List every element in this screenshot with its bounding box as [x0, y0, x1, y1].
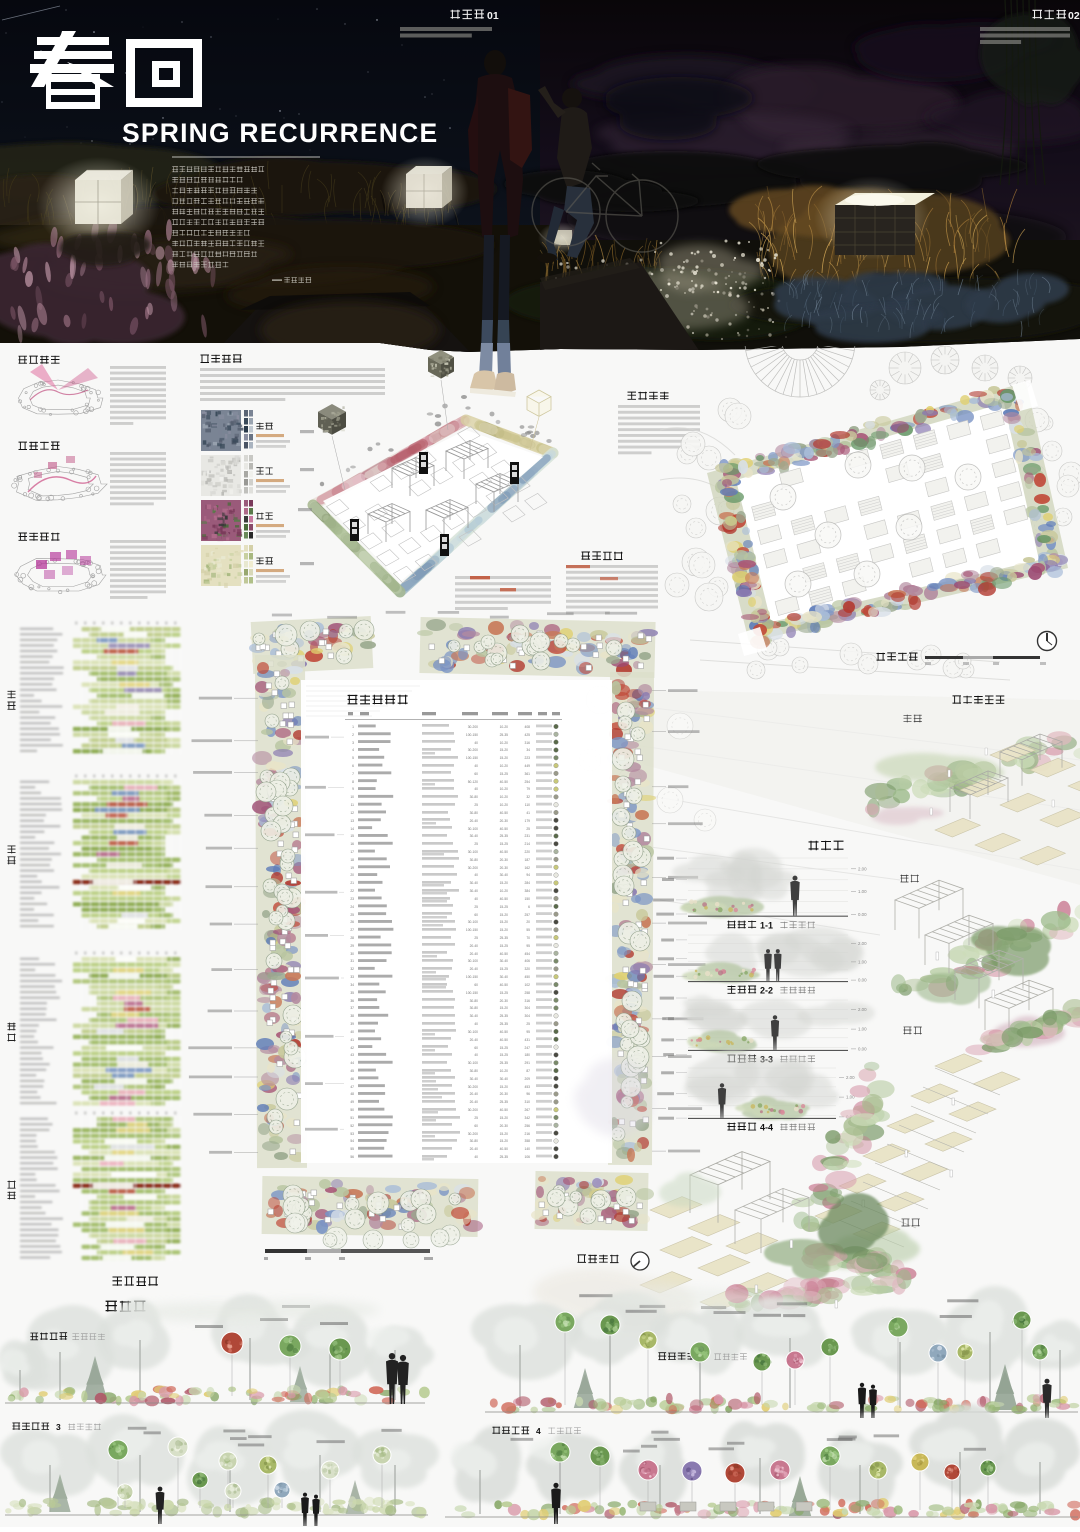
svg-text:30-100: 30-100: [468, 850, 478, 854]
svg-text:25: 25: [474, 936, 478, 940]
svg-text:22: 22: [350, 889, 354, 893]
svg-text:18: 18: [350, 858, 354, 862]
svg-text:267: 267: [524, 1108, 530, 1112]
svg-text:257: 257: [524, 913, 530, 917]
svg-text:30-100: 30-100: [468, 920, 478, 924]
svg-text:30-200: 30-200: [468, 866, 478, 870]
svg-text:15-20: 15-20: [500, 1006, 509, 1010]
svg-text:30-40: 30-40: [500, 975, 509, 979]
svg-text:30-40: 30-40: [500, 959, 509, 963]
svg-text:34: 34: [350, 983, 354, 987]
svg-text:25: 25: [474, 803, 478, 807]
svg-text:450: 450: [524, 975, 530, 979]
svg-text:25: 25: [526, 827, 530, 831]
svg-text:30-100: 30-100: [468, 1061, 478, 1065]
svg-text:15-25: 15-25: [500, 905, 509, 909]
svg-text:60: 60: [474, 772, 478, 776]
svg-text:25-35: 25-35: [500, 1155, 509, 1159]
svg-text:35: 35: [350, 991, 354, 995]
svg-text:7: 7: [352, 772, 354, 776]
svg-text:40-50: 40-50: [500, 827, 509, 831]
svg-text:15-25: 15-25: [500, 1046, 509, 1050]
svg-text:11: 11: [351, 803, 355, 807]
svg-text:20-30: 20-30: [500, 1092, 509, 1096]
svg-text:2.00: 2.00: [858, 941, 867, 946]
svg-text:15-20: 15-20: [500, 1116, 509, 1120]
svg-text:231: 231: [524, 834, 530, 838]
svg-text:15: 15: [350, 834, 354, 838]
svg-text:10-20: 10-20: [500, 741, 509, 745]
svg-text:15-20: 15-20: [500, 920, 509, 924]
svg-text:220: 220: [524, 850, 530, 854]
svg-text:25-35: 25-35: [500, 733, 509, 737]
svg-text:28: 28: [350, 936, 354, 940]
svg-text:40-50: 40-50: [500, 850, 509, 854]
svg-text:10-20: 10-20: [500, 725, 509, 729]
svg-text:4: 4: [352, 748, 354, 752]
svg-text:19: 19: [350, 866, 354, 870]
svg-text:284: 284: [524, 881, 530, 885]
svg-text:20-40: 20-40: [470, 1100, 479, 1104]
svg-text:100-150: 100-150: [466, 733, 478, 737]
svg-text:2.00: 2.00: [846, 1075, 855, 1080]
svg-text:40-50: 40-50: [500, 1147, 509, 1151]
svg-text:30-80: 30-80: [470, 795, 479, 799]
svg-text:30-80: 30-80: [470, 1139, 479, 1143]
svg-text:15-25: 15-25: [500, 944, 509, 948]
svg-text:453: 453: [524, 1085, 530, 1089]
svg-text:30-80: 30-80: [470, 811, 479, 815]
svg-text:33: 33: [350, 975, 354, 979]
svg-text:53: 53: [350, 1132, 354, 1136]
svg-text:100-150: 100-150: [466, 991, 478, 995]
svg-text:20-40: 20-40: [470, 1147, 479, 1151]
svg-text:6: 6: [352, 764, 354, 768]
svg-text:140: 140: [524, 1147, 530, 1151]
svg-text:47: 47: [350, 1085, 354, 1089]
svg-text:26: 26: [350, 920, 354, 924]
svg-text:5: 5: [352, 756, 354, 760]
svg-text:20-40: 20-40: [470, 944, 479, 948]
svg-text:102: 102: [524, 983, 530, 987]
svg-text:9: 9: [352, 787, 354, 791]
svg-text:15-20: 15-20: [500, 1132, 509, 1136]
svg-text:41: 41: [350, 1038, 354, 1042]
svg-text:40: 40: [474, 1022, 478, 1026]
svg-text:254: 254: [524, 780, 530, 784]
svg-text:20: 20: [350, 873, 354, 877]
svg-text:40: 40: [474, 1053, 478, 1057]
svg-text:10-20: 10-20: [500, 889, 509, 893]
svg-text:40-50: 40-50: [500, 1108, 509, 1112]
svg-text:8: 8: [352, 780, 354, 784]
svg-text:95: 95: [526, 1030, 530, 1034]
svg-text:55: 55: [526, 928, 530, 932]
svg-text:180: 180: [524, 1053, 530, 1057]
svg-text:10-20: 10-20: [500, 787, 509, 791]
svg-text:38: 38: [350, 1014, 354, 1018]
svg-text:15-20: 15-20: [500, 748, 509, 752]
svg-text:15-20: 15-20: [500, 881, 509, 885]
svg-text:32: 32: [350, 967, 354, 971]
svg-text:2.00: 2.00: [858, 866, 867, 871]
svg-text:50: 50: [350, 1108, 354, 1112]
svg-text:449: 449: [524, 764, 530, 768]
svg-text:1-1: 1-1: [760, 921, 773, 931]
svg-text:30-200: 30-200: [468, 1085, 478, 1089]
svg-text:20-40: 20-40: [470, 967, 479, 971]
svg-text:15-25: 15-25: [500, 772, 509, 776]
svg-text:23: 23: [350, 897, 354, 901]
svg-text:31: 31: [350, 959, 354, 963]
svg-text:216: 216: [524, 1132, 530, 1136]
svg-text:96: 96: [526, 1092, 530, 1096]
svg-text:43: 43: [350, 1053, 354, 1057]
svg-text:12: 12: [350, 811, 354, 815]
svg-text:49: 49: [350, 1100, 354, 1104]
svg-text:10: 10: [350, 795, 354, 799]
svg-text:20-40: 20-40: [470, 1038, 479, 1042]
svg-text:40-50: 40-50: [500, 811, 509, 815]
svg-text:40-50: 40-50: [500, 1038, 509, 1042]
svg-text:60: 60: [474, 1124, 478, 1128]
svg-text:10-20: 10-20: [500, 803, 509, 807]
svg-text:15-20: 15-20: [500, 928, 509, 932]
svg-text:15-25: 15-25: [500, 1053, 509, 1057]
svg-text:20-30: 20-30: [500, 1124, 509, 1128]
svg-text:54: 54: [350, 1139, 354, 1143]
svg-text:408: 408: [524, 725, 530, 729]
svg-text:56: 56: [350, 1155, 354, 1159]
svg-text:60: 60: [474, 983, 478, 987]
svg-text:30-100: 30-100: [468, 959, 478, 963]
svg-text:02: 02: [1068, 10, 1080, 22]
svg-text:30-40: 30-40: [470, 881, 479, 885]
svg-text:40: 40: [474, 741, 478, 745]
svg-text:320: 320: [524, 967, 530, 971]
svg-text:316: 316: [524, 741, 530, 745]
svg-text:40: 40: [474, 897, 478, 901]
svg-text:40-50: 40-50: [500, 1030, 509, 1034]
svg-text:20-40: 20-40: [470, 952, 479, 956]
svg-text:SPRING RECURRENCE: SPRING RECURRENCE: [122, 118, 438, 148]
svg-text:01: 01: [487, 10, 499, 22]
svg-text:1.00: 1.00: [858, 889, 867, 894]
svg-text:45: 45: [350, 1069, 354, 1073]
svg-text:30-200: 30-200: [468, 1132, 478, 1136]
svg-text:15-25: 15-25: [500, 991, 509, 995]
svg-text:30-40: 30-40: [470, 1077, 479, 1081]
svg-text:30-40: 30-40: [470, 889, 479, 893]
svg-text:30-80: 30-80: [470, 1006, 479, 1010]
svg-text:30-80: 30-80: [470, 858, 479, 862]
svg-text:36: 36: [350, 999, 354, 1003]
svg-text:25-35: 25-35: [500, 1100, 509, 1104]
svg-text:40-50: 40-50: [500, 952, 509, 956]
svg-text:40: 40: [474, 1155, 478, 1159]
svg-text:454: 454: [524, 952, 530, 956]
svg-text:100-150: 100-150: [466, 756, 478, 760]
svg-text:358: 358: [524, 1139, 530, 1143]
svg-text:79: 79: [526, 787, 530, 791]
svg-text:87: 87: [526, 1069, 530, 1073]
svg-text:30-80: 30-80: [470, 999, 479, 1003]
svg-text:3: 3: [352, 741, 354, 745]
svg-text:25: 25: [474, 842, 478, 846]
svg-text:150: 150: [524, 897, 530, 901]
svg-text:2: 2: [352, 733, 354, 737]
svg-text:3: 3: [56, 1422, 61, 1432]
svg-text:25-35: 25-35: [500, 1014, 509, 1018]
svg-text:361: 361: [524, 772, 530, 776]
svg-text:15-25: 15-25: [500, 842, 509, 846]
svg-text:51: 51: [350, 1116, 354, 1120]
svg-text:4-4: 4-4: [760, 1123, 773, 1133]
svg-text:187: 187: [524, 858, 530, 862]
svg-text:406: 406: [524, 959, 530, 963]
svg-text:24: 24: [350, 905, 354, 909]
svg-text:15-20: 15-20: [500, 1139, 509, 1143]
svg-text:2-2: 2-2: [760, 986, 773, 996]
svg-text:25: 25: [474, 1116, 478, 1120]
svg-text:2.00: 2.00: [858, 1007, 867, 1012]
svg-text:10-20: 10-20: [500, 764, 509, 768]
svg-text:16: 16: [350, 842, 354, 846]
svg-text:25-35: 25-35: [500, 936, 509, 940]
svg-text:30-100: 30-100: [468, 1030, 478, 1034]
svg-text:15-25: 15-25: [500, 967, 509, 971]
svg-text:100-150: 100-150: [466, 975, 478, 979]
svg-text:29: 29: [350, 944, 354, 948]
svg-text:40-50: 40-50: [500, 780, 509, 784]
svg-text:42: 42: [350, 1046, 354, 1050]
svg-text:100-150: 100-150: [466, 928, 478, 932]
svg-text:40-50: 40-50: [500, 983, 509, 987]
svg-text:256: 256: [524, 1124, 530, 1128]
svg-text:258: 258: [524, 991, 530, 995]
svg-text:20-30: 20-30: [500, 999, 509, 1003]
svg-text:15-20: 15-20: [500, 913, 509, 917]
svg-text:17: 17: [350, 850, 354, 854]
svg-text:40: 40: [474, 787, 478, 791]
svg-text:20-40: 20-40: [470, 1092, 479, 1096]
svg-text:10-20: 10-20: [500, 1069, 509, 1073]
svg-text:40: 40: [474, 764, 478, 768]
svg-text:25-35: 25-35: [500, 1022, 509, 1026]
svg-text:25: 25: [474, 905, 478, 909]
svg-text:310: 310: [524, 1100, 530, 1104]
svg-text:304: 304: [524, 1014, 530, 1018]
svg-text:40: 40: [350, 1030, 354, 1034]
svg-text:0.00: 0.00: [858, 912, 867, 917]
svg-text:46: 46: [350, 1077, 354, 1081]
svg-text:21: 21: [350, 881, 354, 885]
svg-text:30-80: 30-80: [470, 1069, 479, 1073]
svg-text:20-30: 20-30: [500, 819, 509, 823]
svg-text:10-20: 10-20: [500, 795, 509, 799]
svg-text:106: 106: [524, 1155, 530, 1159]
svg-text:14: 14: [350, 827, 354, 831]
svg-text:0.00: 0.00: [858, 1047, 867, 1052]
svg-text:60: 60: [474, 1046, 478, 1050]
svg-text:40: 40: [474, 873, 478, 877]
svg-text:55: 55: [350, 1147, 354, 1151]
svg-text:223: 223: [524, 756, 530, 760]
svg-text:25: 25: [350, 913, 354, 917]
svg-text:247: 247: [524, 1046, 530, 1050]
svg-text:30-40: 30-40: [500, 1077, 509, 1081]
svg-text:1.00: 1.00: [858, 1027, 867, 1032]
svg-text:15-20: 15-20: [500, 756, 509, 760]
svg-text:431: 431: [524, 1038, 530, 1042]
svg-text:37: 37: [350, 1006, 354, 1010]
svg-text:209: 209: [524, 1077, 530, 1081]
svg-text:15-20: 15-20: [500, 1085, 509, 1089]
svg-text:30-40: 30-40: [470, 1014, 479, 1018]
svg-text:30-40: 30-40: [470, 834, 479, 838]
svg-text:20-30: 20-30: [500, 866, 509, 870]
svg-text:60: 60: [474, 913, 478, 917]
svg-text:44: 44: [350, 1061, 354, 1065]
svg-text:95: 95: [526, 944, 530, 948]
svg-text:30-200: 30-200: [468, 725, 478, 729]
svg-text:214: 214: [524, 842, 530, 846]
svg-text:1: 1: [352, 725, 354, 729]
svg-text:94: 94: [526, 873, 530, 877]
svg-text:110: 110: [525, 803, 530, 807]
svg-text:34: 34: [526, 748, 530, 752]
svg-text:30-200: 30-200: [468, 1108, 478, 1112]
svg-text:25: 25: [526, 1022, 530, 1026]
svg-text:20: 20: [526, 920, 530, 924]
svg-text:27: 27: [350, 928, 354, 932]
svg-text:39: 39: [350, 1022, 354, 1026]
svg-text:25-35: 25-35: [500, 1061, 509, 1065]
svg-text:342: 342: [524, 1116, 530, 1120]
svg-text:13: 13: [350, 819, 354, 823]
svg-text:6: 6: [528, 905, 530, 909]
svg-text:30-200: 30-200: [468, 748, 478, 752]
svg-text:425: 425: [524, 733, 530, 737]
svg-text:30-40: 30-40: [500, 873, 509, 877]
svg-text:291: 291: [524, 1061, 530, 1065]
svg-text:20-40: 20-40: [470, 819, 479, 823]
svg-text:179: 179: [524, 819, 530, 823]
svg-text:48: 48: [350, 1092, 354, 1096]
svg-text:384: 384: [524, 889, 530, 893]
svg-text:50-120: 50-120: [468, 780, 478, 784]
svg-text:52: 52: [350, 1124, 354, 1128]
svg-text:162: 162: [524, 866, 530, 870]
svg-text:30-100: 30-100: [468, 827, 478, 831]
svg-text:32: 32: [526, 795, 530, 799]
svg-text:1.00: 1.00: [858, 960, 867, 965]
svg-text:41: 41: [526, 811, 530, 815]
svg-text:304: 304: [524, 1006, 530, 1010]
svg-text:30: 30: [350, 952, 354, 956]
svg-text:70: 70: [526, 936, 530, 940]
svg-text:0.00: 0.00: [858, 978, 867, 983]
svg-text:20-30: 20-30: [500, 858, 509, 862]
svg-text:40-50: 40-50: [500, 897, 509, 901]
svg-text:316: 316: [524, 999, 530, 1003]
svg-text:25-35: 25-35: [500, 834, 509, 838]
